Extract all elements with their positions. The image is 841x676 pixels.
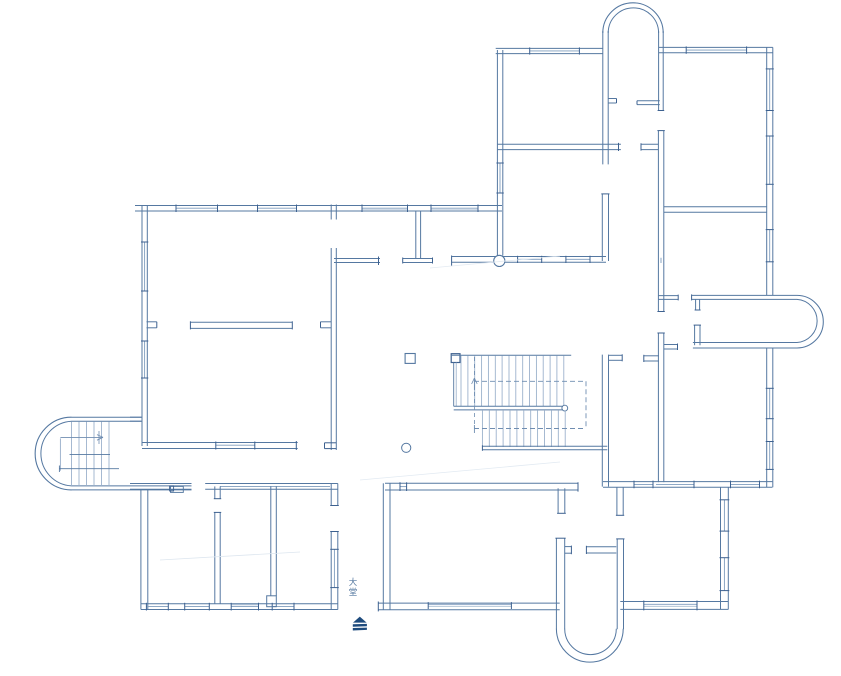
svg-text:大: 大	[349, 577, 358, 587]
svg-text:堂: 堂	[349, 587, 358, 597]
